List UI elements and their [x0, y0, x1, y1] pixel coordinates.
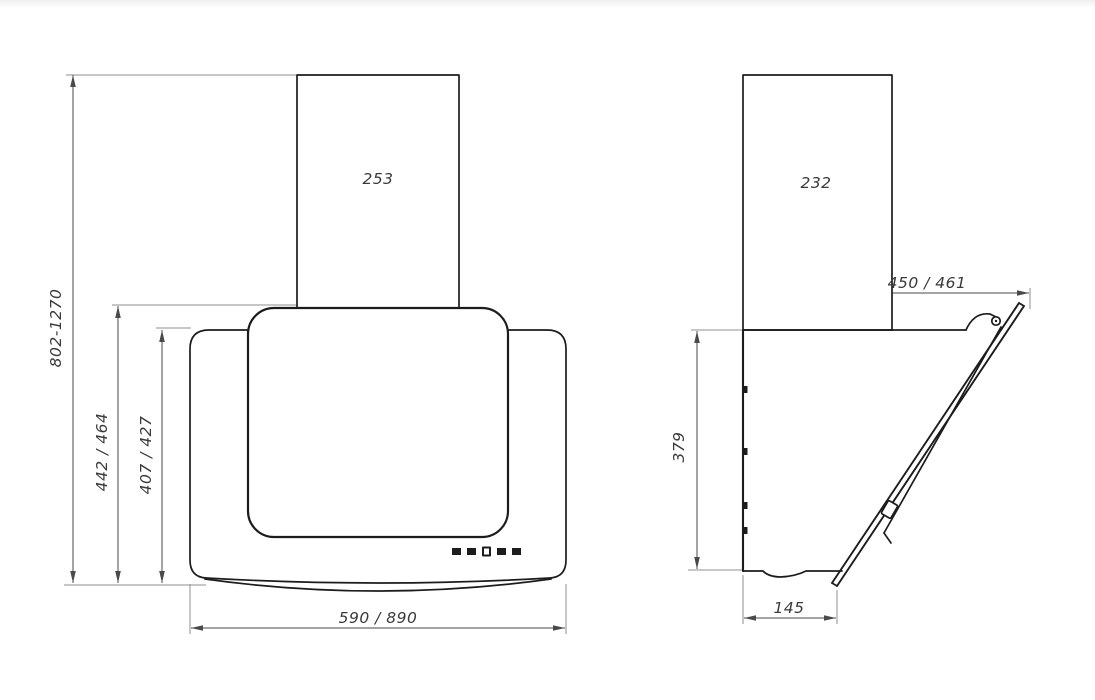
arrow [70, 75, 76, 87]
glass-panel-top-cap [1019, 303, 1024, 306]
dim-label-total-depth: 450 / 461 [888, 274, 967, 292]
side-body-front-foot [884, 533, 891, 543]
mounting-nubs [744, 386, 748, 534]
glass-panel-outer-edge [837, 306, 1024, 586]
mounting-nub [744, 448, 748, 455]
side-view [743, 75, 1024, 586]
control-button-icon [497, 548, 506, 555]
arrow [694, 557, 700, 569]
arrow [159, 330, 165, 342]
dim-label-body-height-total: 442 / 464 [93, 413, 111, 492]
control-button-icon [467, 548, 476, 555]
dim-label-side-height: 379 [670, 431, 688, 462]
mounting-nub [744, 386, 748, 393]
dim-label-duct-width: 253 [362, 170, 393, 188]
side-body-front-edge [884, 327, 1001, 533]
arrow [553, 625, 565, 631]
arrow [1017, 290, 1029, 296]
arrow [70, 571, 76, 583]
arrow [694, 331, 700, 343]
arrow [159, 571, 165, 583]
dim-label-body-width: 590 / 890 [339, 609, 418, 627]
control-button-icon [512, 548, 521, 555]
side-chimney-duct [743, 75, 892, 330]
arrow [744, 615, 756, 621]
arrow [824, 615, 836, 621]
dim-label-body-height-front: 407 / 427 [137, 416, 155, 495]
technical-drawing: 253 802-1270 442 / 464 407 / 427 590 / 8… [0, 0, 1095, 700]
arrow [191, 625, 203, 631]
front-view [190, 75, 566, 591]
arrow [115, 571, 121, 583]
control-button-power-icon [483, 548, 490, 556]
control-button-icon [452, 548, 461, 555]
glass-panel-bottom-cap [832, 583, 837, 586]
arrow [115, 306, 121, 318]
mounting-nub [744, 527, 748, 534]
dim-label-bottom-depth: 145 [773, 599, 804, 617]
drawing-canvas: 253 802-1270 442 / 464 407 / 427 590 / 8… [0, 0, 1095, 700]
side-body-bottom [743, 571, 842, 577]
mounting-nub [744, 502, 748, 509]
front-glass-panel [248, 308, 508, 537]
dim-label-duct-depth: 232 [800, 174, 831, 192]
dim-label-mounting-height-range: 802-1270 [47, 289, 65, 368]
hinge-pivot-center [995, 320, 997, 322]
front-chimney-duct [297, 75, 459, 316]
